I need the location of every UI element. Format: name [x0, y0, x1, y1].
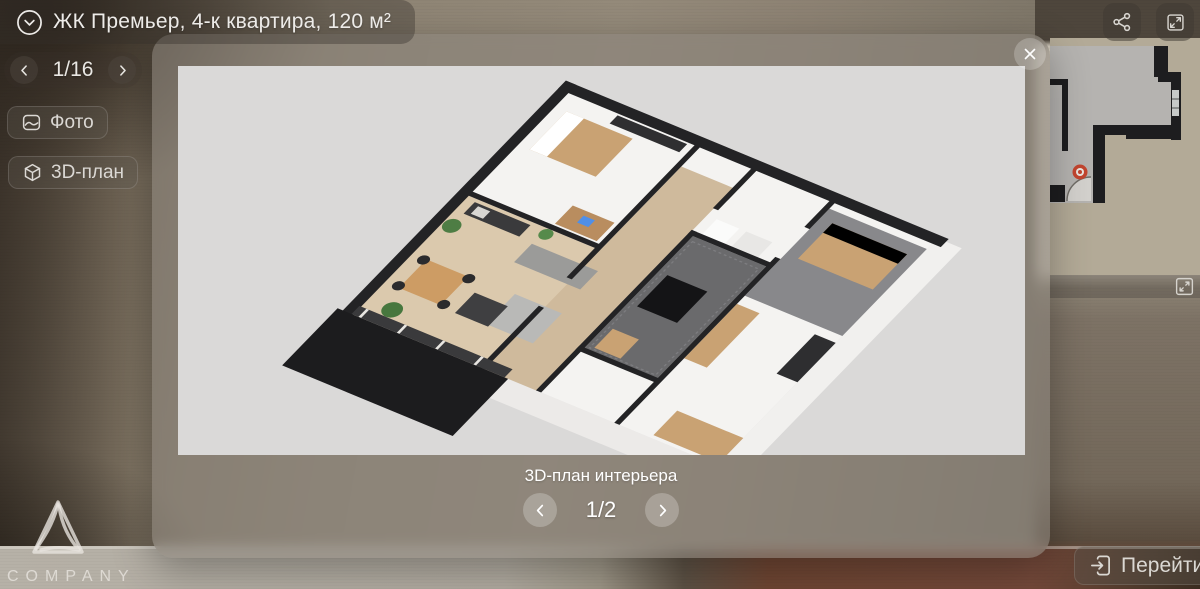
chevron-left-icon: [17, 63, 32, 78]
gallery-prev-button[interactable]: [10, 56, 38, 84]
photo-view-button[interactable]: Фото: [7, 106, 108, 139]
modal-caption: 3D-план интерьера: [152, 466, 1050, 486]
minimap-toolbar: [1050, 275, 1200, 298]
goto-button[interactable]: Перейти: [1074, 546, 1200, 585]
fullscreen-icon: [1165, 12, 1186, 33]
plan3d-view-button[interactable]: 3D-план: [8, 156, 138, 189]
chevron-right-icon: [115, 63, 130, 78]
gallery-next-button[interactable]: [108, 56, 136, 84]
floorplan-image: [178, 66, 1025, 455]
plan3d-view-label: 3D-план: [51, 162, 124, 184]
gallery-modal: 3D-план интерьера 1/2: [152, 34, 1050, 558]
share-icon: [1111, 11, 1133, 33]
minimap-floorplan: [1050, 38, 1200, 275]
apartment-header[interactable]: ЖК Премьер, 4-к квартира, 120 м²: [0, 0, 415, 44]
cube-3d-icon: [22, 162, 43, 183]
goto-button-label: Перейти: [1121, 554, 1200, 578]
fullscreen-button[interactable]: [1156, 3, 1194, 41]
chevron-down-circle-icon: [16, 9, 43, 36]
gallery-pager: 1/16: [4, 52, 142, 88]
brand-logo: COMPANY: [0, 497, 116, 586]
minimap[interactable]: [1050, 38, 1200, 275]
modal-page-indicator: 1/2: [579, 497, 623, 523]
company-logo-text: COMPANY: [0, 568, 116, 586]
modal-prev-button[interactable]: [523, 493, 557, 527]
gallery-page-indicator: 1/16: [47, 58, 99, 82]
photo-icon: [21, 112, 42, 133]
apartment-title: ЖК Премьер, 4-к квартира, 120 м²: [53, 10, 391, 34]
enter-icon: [1089, 554, 1112, 577]
close-icon: [1021, 45, 1039, 63]
photo-view-label: Фото: [50, 112, 94, 134]
company-logo-icon: [29, 497, 87, 559]
expand-icon: [1174, 276, 1195, 297]
modal-next-button[interactable]: [645, 493, 679, 527]
share-button[interactable]: [1103, 3, 1141, 41]
minimap-expand-button[interactable]: [1174, 276, 1195, 297]
modal-pager: 1/2: [152, 493, 1050, 527]
modal-close-button[interactable]: [1014, 38, 1046, 70]
chevron-right-icon: [654, 502, 671, 519]
chevron-left-icon: [532, 502, 549, 519]
